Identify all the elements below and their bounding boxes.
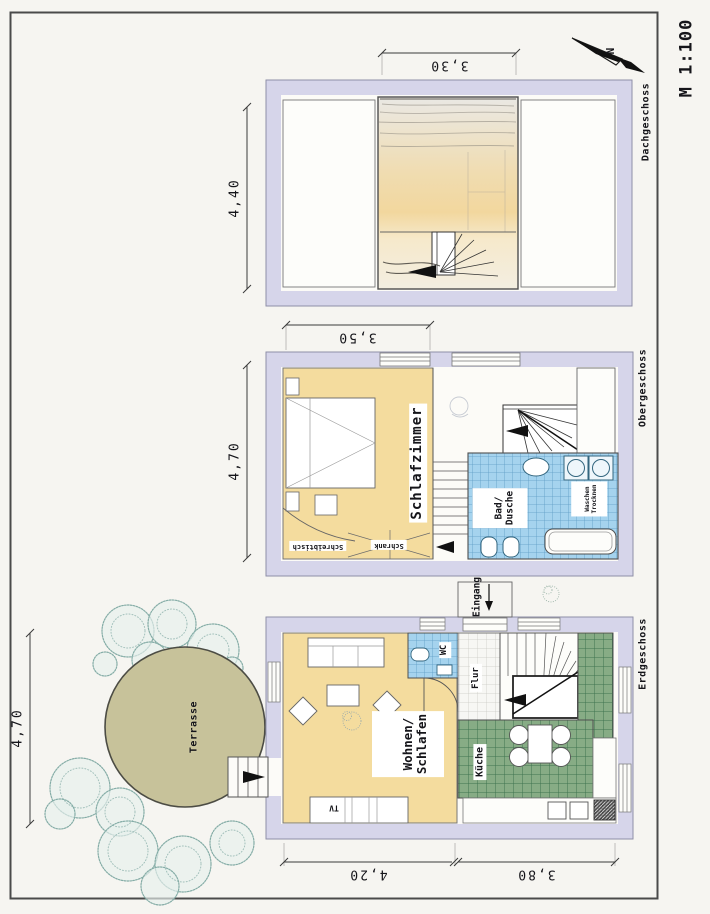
dachgeschoss-plan [243, 49, 632, 306]
terrace-steps [228, 757, 268, 797]
stove [594, 800, 615, 820]
kitchen-sink [548, 802, 566, 819]
dining-table [528, 725, 552, 763]
eg-windows-door [420, 618, 560, 631]
label-schrank: Schrank [371, 540, 407, 550]
desk-chair [315, 495, 337, 515]
chair [552, 726, 571, 745]
chair [552, 748, 571, 767]
room-label-flur: Flur [470, 664, 482, 692]
nightstand [286, 378, 299, 395]
floor-label-dachgeschoss: Dachgeschoss [640, 83, 651, 161]
dim-og-width: 3,50 [337, 329, 376, 344]
entrance-door [463, 618, 507, 631]
label-tv: TV [329, 803, 339, 812]
sofa [308, 638, 384, 667]
tv-sideboard [310, 797, 408, 823]
dim-dg-depth: 4,40 [229, 178, 244, 217]
room-label-schlafzimmer: Schlafzimmer [409, 403, 427, 522]
room-label-waschen-trocknen: WaschenTrocknen [571, 482, 607, 517]
bed [286, 398, 375, 488]
dg-room-left [283, 100, 375, 287]
floor-label-erdgeschoss: Erdgeschoss [637, 618, 648, 690]
toilet [481, 537, 497, 557]
sink [437, 665, 452, 675]
room-label-wohnen-schlafen: Wohnen/Schlafen [372, 711, 444, 777]
dg-room-right [521, 100, 615, 287]
toilet [411, 648, 429, 661]
room-label-bad-dusche: Bad/Dusche [472, 488, 527, 528]
dim-eg-right: 3,80 [516, 866, 555, 881]
plant-sketch [543, 586, 559, 602]
room-label-wc: WC [439, 642, 451, 658]
eg-stairs [500, 633, 578, 720]
chair [510, 748, 529, 767]
dim-og-depth: 4,70 [229, 441, 244, 480]
kitchen-counter [463, 798, 616, 823]
kitchen-sink [570, 802, 588, 819]
coffee-table [327, 685, 359, 706]
room-label-kueche: Küche [473, 744, 486, 780]
obergeschoss-plan [243, 321, 633, 602]
label-terrasse: Terrasse [188, 701, 199, 753]
dim-dg-width: 3,30 [429, 57, 468, 72]
label-eingang: Eingang [473, 577, 484, 617]
eg-entrance [458, 582, 512, 617]
dim-terrace: 4,70 [12, 708, 27, 747]
bathtub [545, 529, 616, 554]
sink [523, 458, 549, 476]
floor-plan-drawing [0, 0, 710, 914]
floorplan-sheet: M 1:100 N Dachgeschoss Obergeschoss Erdg… [0, 0, 710, 914]
scale-label: M 1:100 [677, 19, 696, 98]
terrace-garden [45, 600, 265, 905]
kitchen-counter-side [593, 738, 616, 798]
floor-label-obergeschoss: Obergeschoss [637, 349, 648, 427]
label-schreibtisch: Schreibtisch [290, 541, 347, 551]
north-arrow-icon [572, 38, 645, 73]
bidet [503, 537, 519, 557]
nightstand [286, 492, 299, 511]
chair [510, 726, 529, 745]
dim-eg-left: 4,20 [348, 866, 387, 881]
north-letter: N [605, 48, 617, 55]
og-room-right [577, 368, 615, 453]
entrance-arrow [485, 601, 493, 611]
